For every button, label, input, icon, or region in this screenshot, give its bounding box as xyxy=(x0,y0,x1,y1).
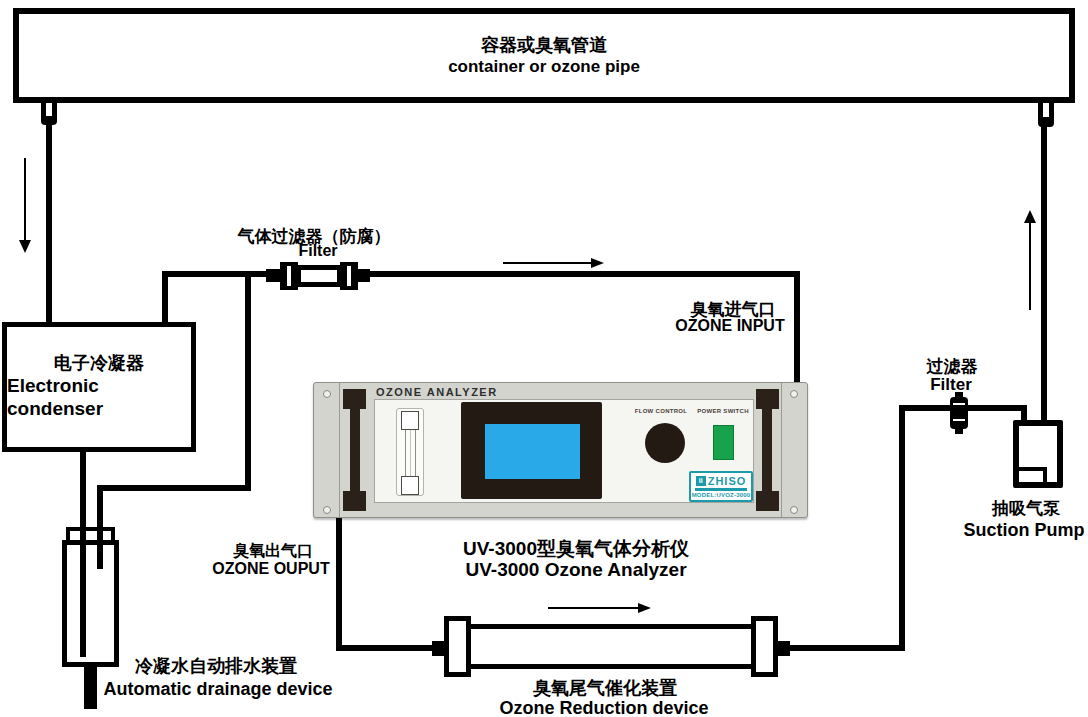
arrow-down-line xyxy=(24,158,26,242)
handle-right-bottom xyxy=(756,491,779,511)
pipe-condensate-tee-down xyxy=(245,271,251,489)
analyzer-caption-en: UV-3000 Ozone Analyzer xyxy=(465,559,686,581)
pipe-connector-right xyxy=(1038,103,1054,127)
arrow-right-icon xyxy=(591,258,604,268)
suction-pump-port-block xyxy=(1019,467,1047,482)
screw-icon xyxy=(323,506,331,514)
arrow-right-line xyxy=(503,262,593,264)
rack-ear-divider-left xyxy=(339,383,340,517)
panel-title: OZONE ANALYZER xyxy=(376,386,498,398)
container-label-en: container or ozone pipe xyxy=(448,56,640,77)
pipe-condenser-drain xyxy=(80,452,86,657)
pipe-output-to-reduction xyxy=(336,645,437,651)
flowmeter-tube-wall xyxy=(415,430,416,476)
container-label-zh: 容器或臭氧管道 xyxy=(481,34,607,57)
flowmeter-bottom-block xyxy=(401,476,419,495)
container-or-ozone-pipe-box: 容器或臭氧管道 container or ozone pipe xyxy=(13,8,1075,103)
drainage-tube-cap xyxy=(66,527,115,544)
flowmeter-float-line xyxy=(410,430,411,476)
screw-icon xyxy=(323,390,331,398)
gas-filter-slit xyxy=(287,266,291,286)
handle-left-bottom xyxy=(343,491,366,511)
brand-logo-box: ii ZHISO MODEL:UVOZ-3000 xyxy=(689,471,753,502)
pipe-condensate-horizontal xyxy=(97,485,251,491)
rack-ear-divider-right xyxy=(781,383,782,517)
handle-left-bar xyxy=(350,399,360,501)
pipe-connector-left xyxy=(41,103,57,125)
condenser-label-en: Electronic condenser xyxy=(7,375,191,421)
model-number: MODEL:UVOZ-3000 xyxy=(692,492,751,498)
ozone-analyzer-panel: OZONE ANALYZER FLOW CONTROL POWER SWITCH… xyxy=(313,382,808,518)
suction-pump-label-en: Suction Pump xyxy=(964,520,1085,541)
reduction-cap-right xyxy=(751,616,778,677)
arrow-down-icon xyxy=(19,240,31,253)
suction-pump-label-zh: 抽吸气泵 xyxy=(992,497,1060,520)
drain-outlet xyxy=(84,665,97,709)
power-switch[interactable] xyxy=(713,425,734,460)
reduction-label-zh: 臭氧尾气催化装置 xyxy=(533,676,677,700)
display-bezel xyxy=(461,402,602,499)
ozone-output-label-en: OZONE OUPUT xyxy=(212,560,329,578)
reduction-nipple-right xyxy=(776,641,790,656)
pipe-to-gas-filter xyxy=(162,271,270,277)
right-filter-slit xyxy=(953,403,965,405)
pipe-pump-to-container xyxy=(1041,125,1047,422)
drainage-label-zh: 冷凝水自动排水装置 xyxy=(135,654,297,678)
ozone-output-label-zh: 臭氧出气口 xyxy=(233,541,313,562)
lcd-screen xyxy=(485,424,580,479)
right-filter-slit xyxy=(953,419,965,421)
screw-icon xyxy=(790,390,798,398)
flow-control-label: FLOW CONTROL xyxy=(635,408,688,414)
flowmeter-tube-wall xyxy=(405,430,406,476)
pipe-condensate-into-tube xyxy=(97,491,103,569)
gas-filter-nipple-right xyxy=(356,269,370,282)
drainage-label-en: Automatic drainage device xyxy=(103,679,332,700)
drainage-tube xyxy=(62,540,119,667)
reduction-body xyxy=(466,624,756,669)
ozone-input-label-en: OZONE INPUT xyxy=(675,317,784,335)
reduction-label-en: Ozone Reduction device xyxy=(499,698,708,717)
flowmeter-top-block xyxy=(401,411,419,430)
arrow-right2-line xyxy=(548,607,640,609)
right-filter-label-en: Filter xyxy=(930,375,972,395)
right-filter-body xyxy=(950,397,968,429)
suction-pump-body xyxy=(1013,420,1063,488)
zhiso-logo-icon: ii xyxy=(696,476,706,486)
connector-slot xyxy=(46,103,52,116)
pipe-reduction-outlet xyxy=(789,645,905,651)
arrow-right2-icon xyxy=(638,603,651,613)
flowmeter xyxy=(396,408,424,496)
brand-logo-row: ii ZHISO xyxy=(696,476,747,487)
screw-icon xyxy=(790,506,798,514)
connector-slot xyxy=(1043,103,1049,117)
pipe-gas-filter-to-input xyxy=(366,271,800,277)
gas-filter-label-en: Filter xyxy=(298,242,337,260)
logo-tagline-strip xyxy=(695,488,747,491)
arrow-up-line xyxy=(1029,222,1031,310)
right-filter-nipple-bottom xyxy=(955,427,963,434)
handle-right-bar xyxy=(762,399,772,501)
gas-filter-body xyxy=(296,265,342,287)
pipe-ozone-output-drop xyxy=(336,518,342,651)
flow-control-knob[interactable] xyxy=(645,423,685,463)
panel-inner: FLOW CONTROL POWER SWITCH ii ZHISO MODEL… xyxy=(374,399,754,503)
pipe-reduction-riser xyxy=(899,405,905,651)
ozone-analyzer-flow-diagram: 容器或臭氧管道 container or ozone pipe 电子冷凝器 El… xyxy=(0,0,1088,717)
power-switch-label: POWER SWITCH xyxy=(697,408,749,414)
pipe-container-to-condenser xyxy=(46,125,52,323)
electronic-condenser-box: 电子冷凝器 Electronic condenser xyxy=(2,322,196,452)
condenser-label-zh: 电子冷凝器 xyxy=(54,353,144,375)
brand-name: ZHISO xyxy=(708,476,747,487)
pipe-ozone-input-drop xyxy=(794,271,800,384)
pipe-condenser-outlet-up xyxy=(162,271,168,327)
gas-filter-slit xyxy=(347,266,351,286)
